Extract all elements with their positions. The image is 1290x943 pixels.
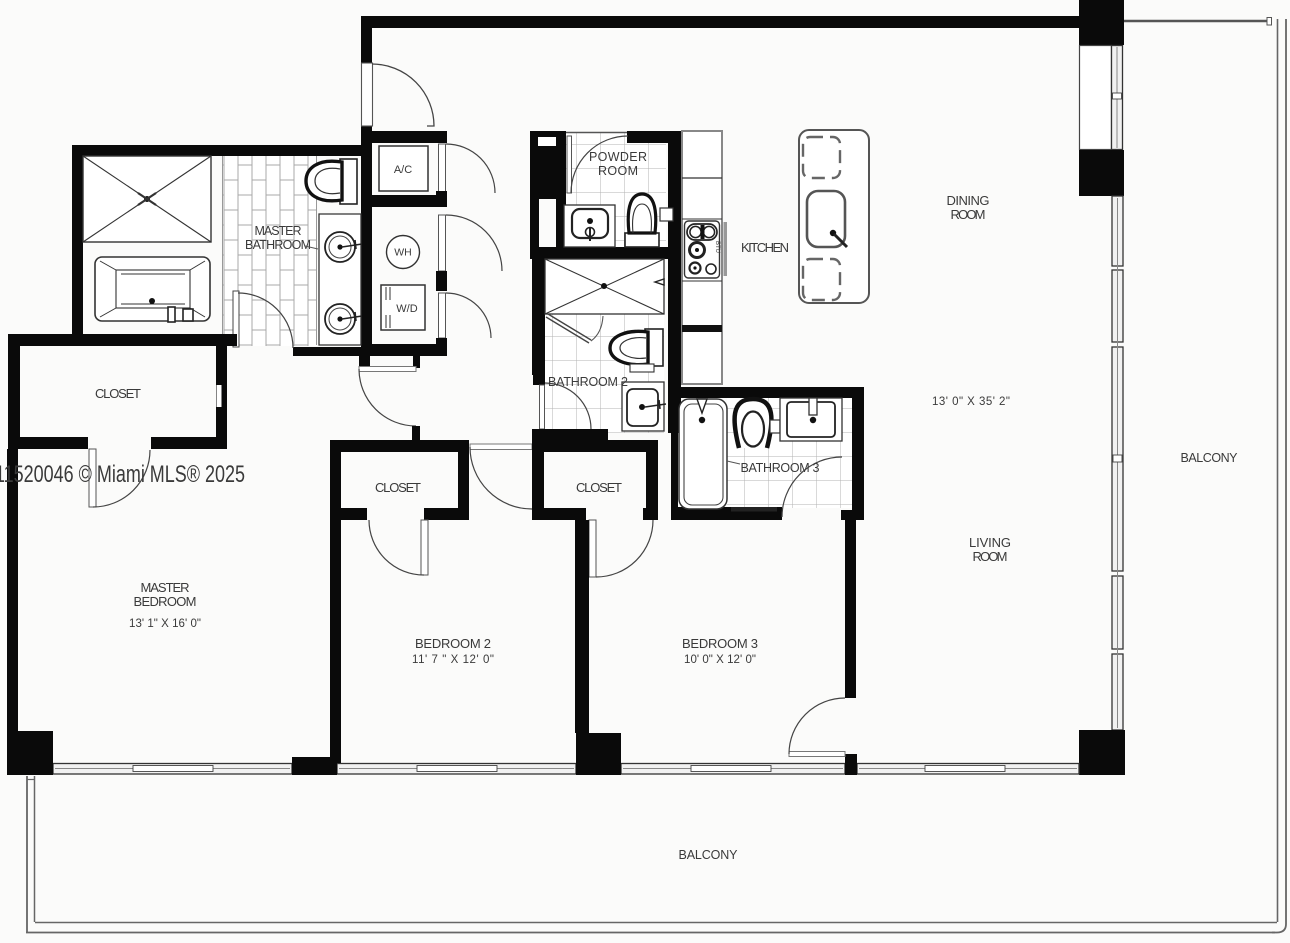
svg-text:A/C: A/C bbox=[394, 164, 412, 176]
svg-text:CLOSET: CLOSET bbox=[95, 386, 141, 401]
svg-text:W/D: W/D bbox=[396, 303, 417, 315]
svg-text:BTU: BTU bbox=[714, 241, 720, 253]
svg-text:BATHROOM 3: BATHROOM 3 bbox=[741, 461, 820, 475]
svg-text:LIVING: LIVING bbox=[969, 535, 1011, 550]
svg-text:KITCHEN: KITCHEN bbox=[741, 240, 789, 255]
svg-text:BEDROOM 3: BEDROOM 3 bbox=[682, 636, 758, 651]
svg-text:ROOM: ROOM bbox=[973, 549, 1008, 564]
svg-text:MASTER: MASTER bbox=[141, 580, 190, 595]
svg-text:13' 1" X 16' 0": 13' 1" X 16' 0" bbox=[129, 618, 201, 630]
svg-text:WH: WH bbox=[394, 247, 412, 259]
svg-text:POWDER: POWDER bbox=[589, 150, 647, 164]
svg-text:BEDROOM: BEDROOM bbox=[134, 594, 197, 609]
svg-text:BALCONY: BALCONY bbox=[679, 848, 739, 862]
svg-text:10' 0" X 12' 0": 10' 0" X 12' 0" bbox=[684, 654, 756, 666]
svg-text:DINING: DINING bbox=[947, 193, 990, 208]
svg-text:BATHROOM: BATHROOM bbox=[245, 238, 311, 252]
svg-text:CLOSET: CLOSET bbox=[375, 480, 421, 495]
svg-text:11' 7 " X 12' 0": 11' 7 " X 12' 0" bbox=[412, 654, 494, 666]
svg-text:ROOM: ROOM bbox=[951, 207, 986, 222]
svg-text:13' 0" X 35' 2": 13' 0" X 35' 2" bbox=[932, 396, 1010, 408]
svg-text:MASTER: MASTER bbox=[255, 224, 302, 238]
svg-text:ROOM: ROOM bbox=[598, 164, 638, 178]
svg-text:BALCONY: BALCONY bbox=[1181, 451, 1239, 465]
svg-text:BATHROOM 2: BATHROOM 2 bbox=[548, 375, 628, 389]
svg-text:A11520046 © Miami MLS® 2025: A11520046 © Miami MLS® 2025 bbox=[0, 461, 245, 488]
svg-text:CLOSET: CLOSET bbox=[576, 480, 622, 495]
svg-text:BEDROOM 2: BEDROOM 2 bbox=[415, 636, 491, 651]
